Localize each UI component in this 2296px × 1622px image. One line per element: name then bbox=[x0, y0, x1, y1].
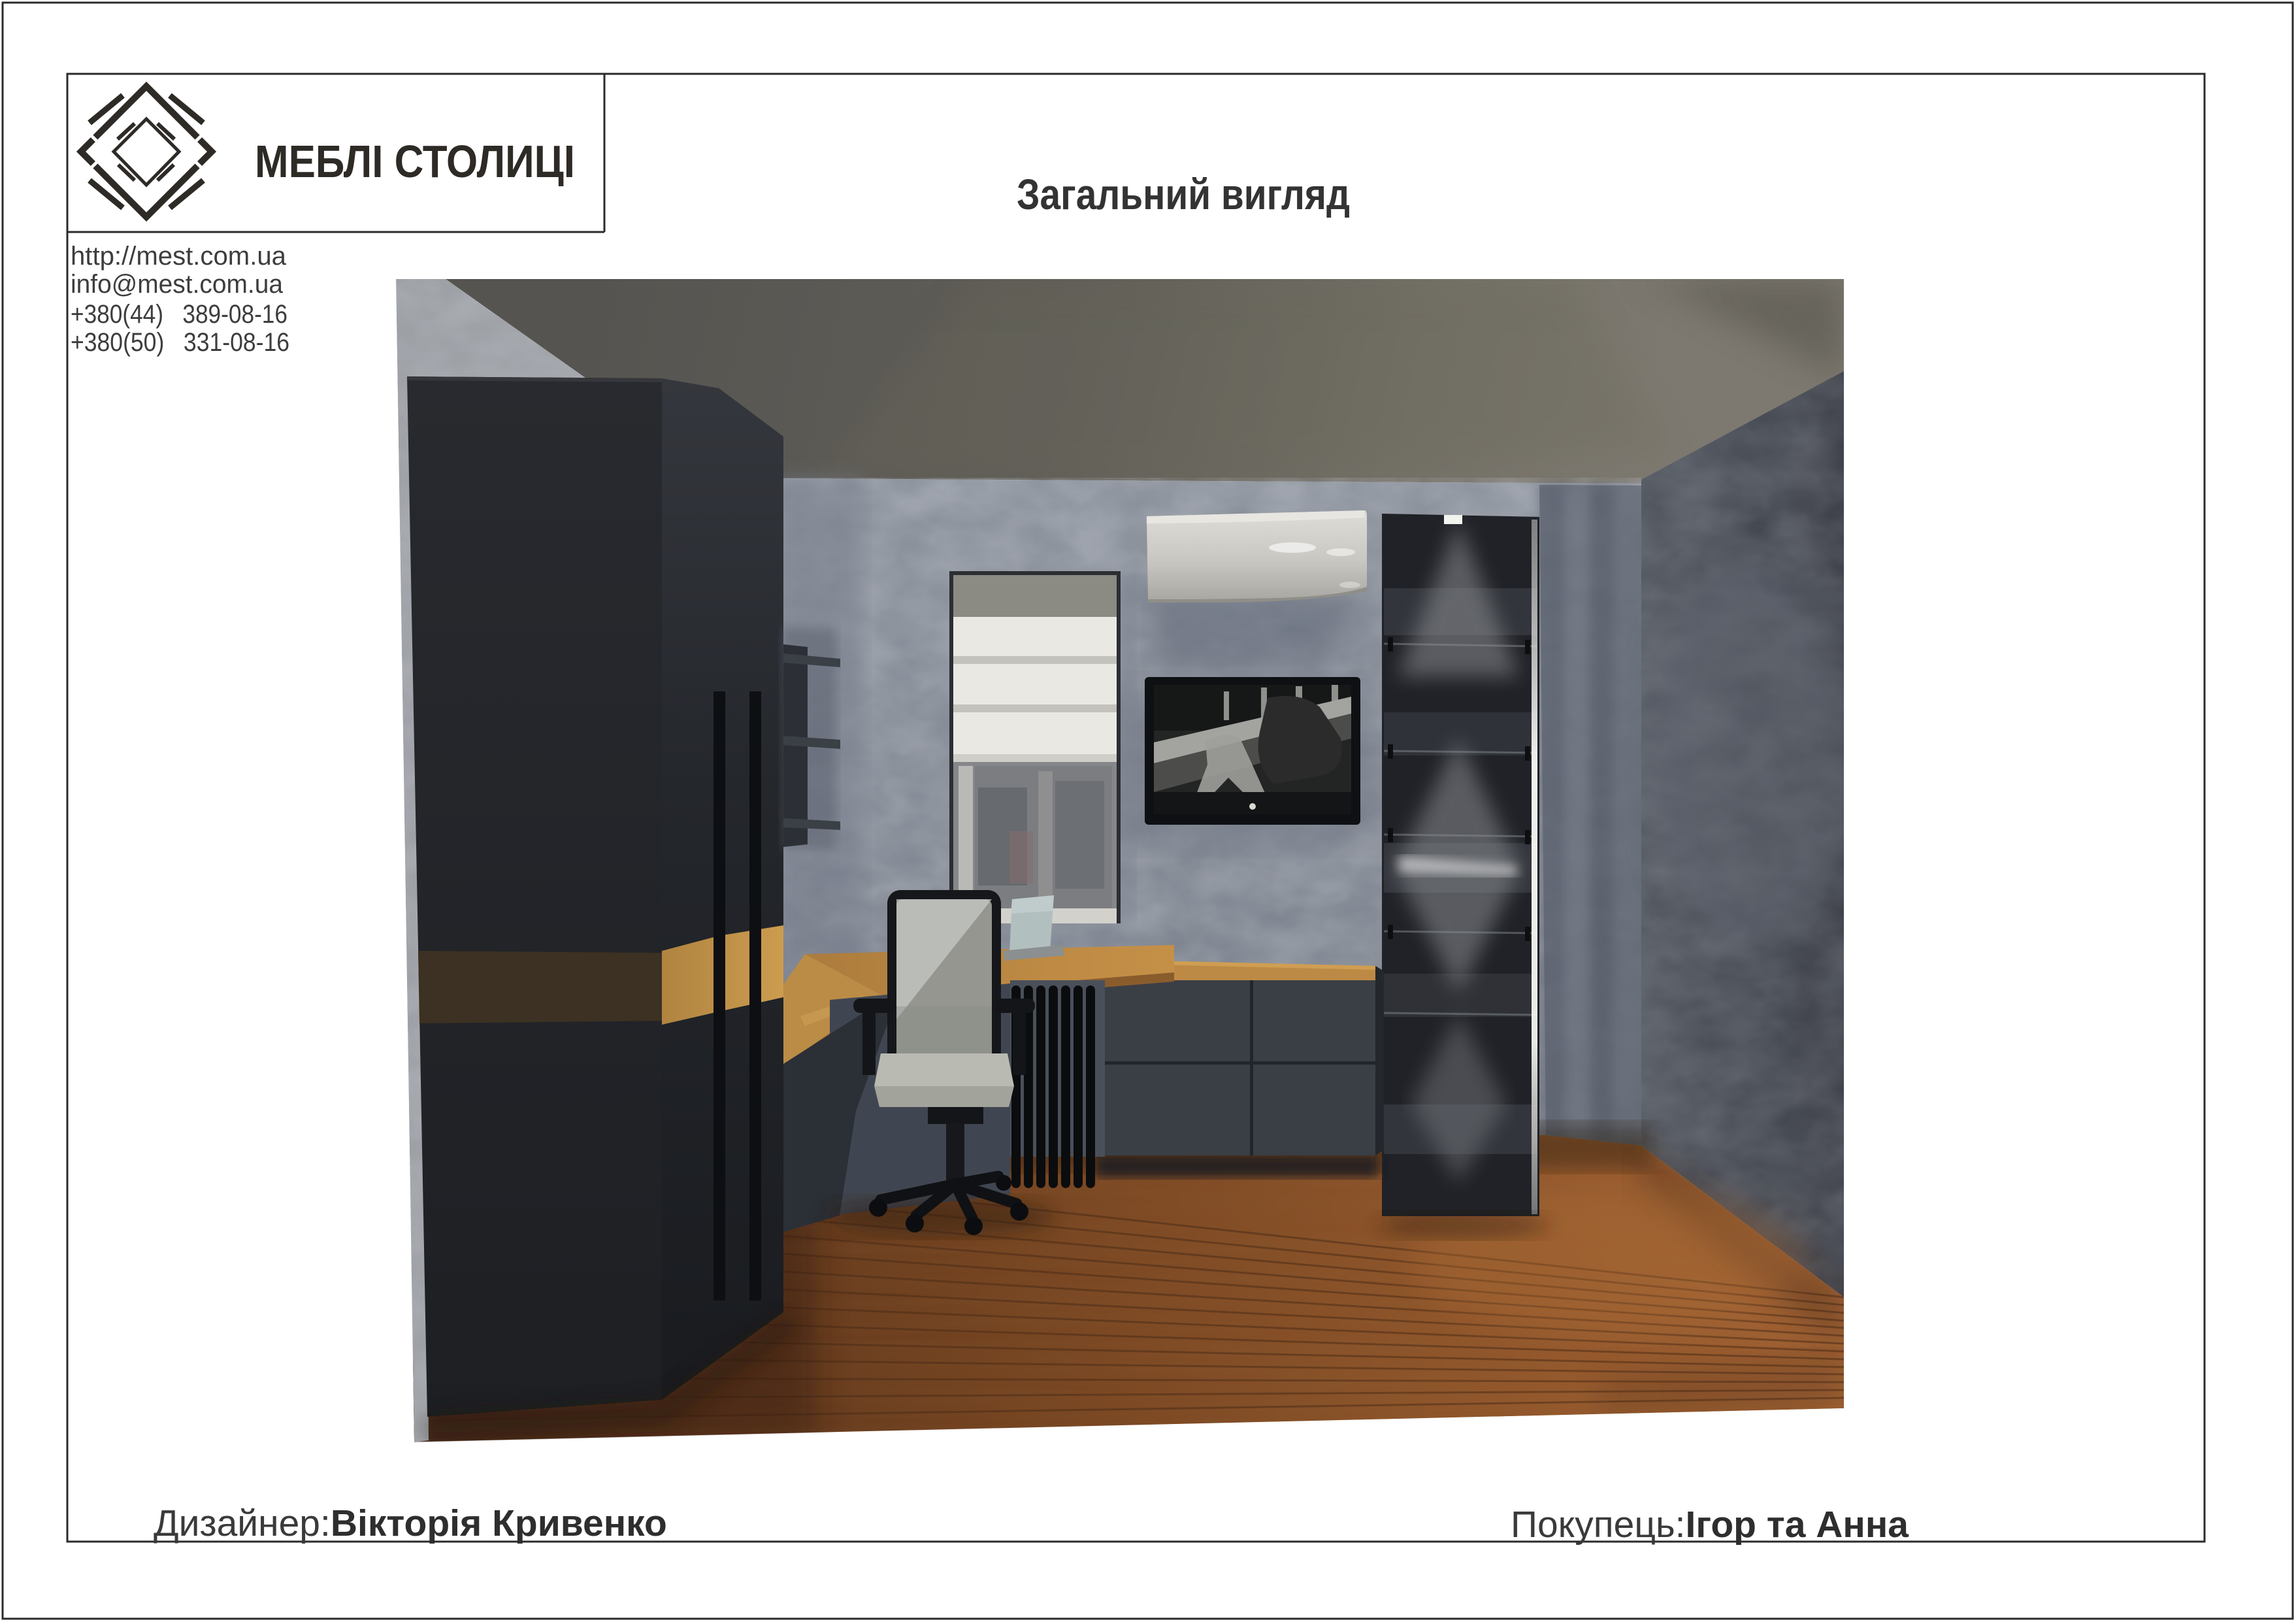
svg-text:МЕБЛІ СТОЛИЦІ: МЕБЛІ СТОЛИЦІ bbox=[255, 136, 575, 187]
svg-text:http://mest.com.ua: http://mest.com.ua bbox=[71, 242, 287, 271]
svg-text:info@mest.com.ua: info@mest.com.ua bbox=[71, 270, 284, 299]
svg-text:Дизайнер:Вікторія Кривенко: Дизайнер:Вікторія Кривенко bbox=[154, 1502, 667, 1544]
svg-text:Покупець:Ігор та Анна: Покупець:Ігор та Анна bbox=[1511, 1504, 1909, 1546]
svg-text:Загальний вигляд: Загальний вигляд bbox=[1017, 170, 1350, 218]
svg-text:+380(44) 389-08-16: +380(44) 389-08-16 bbox=[71, 300, 287, 329]
svg-text:+380(50) 331-08-16: +380(50) 331-08-16 bbox=[71, 328, 289, 357]
